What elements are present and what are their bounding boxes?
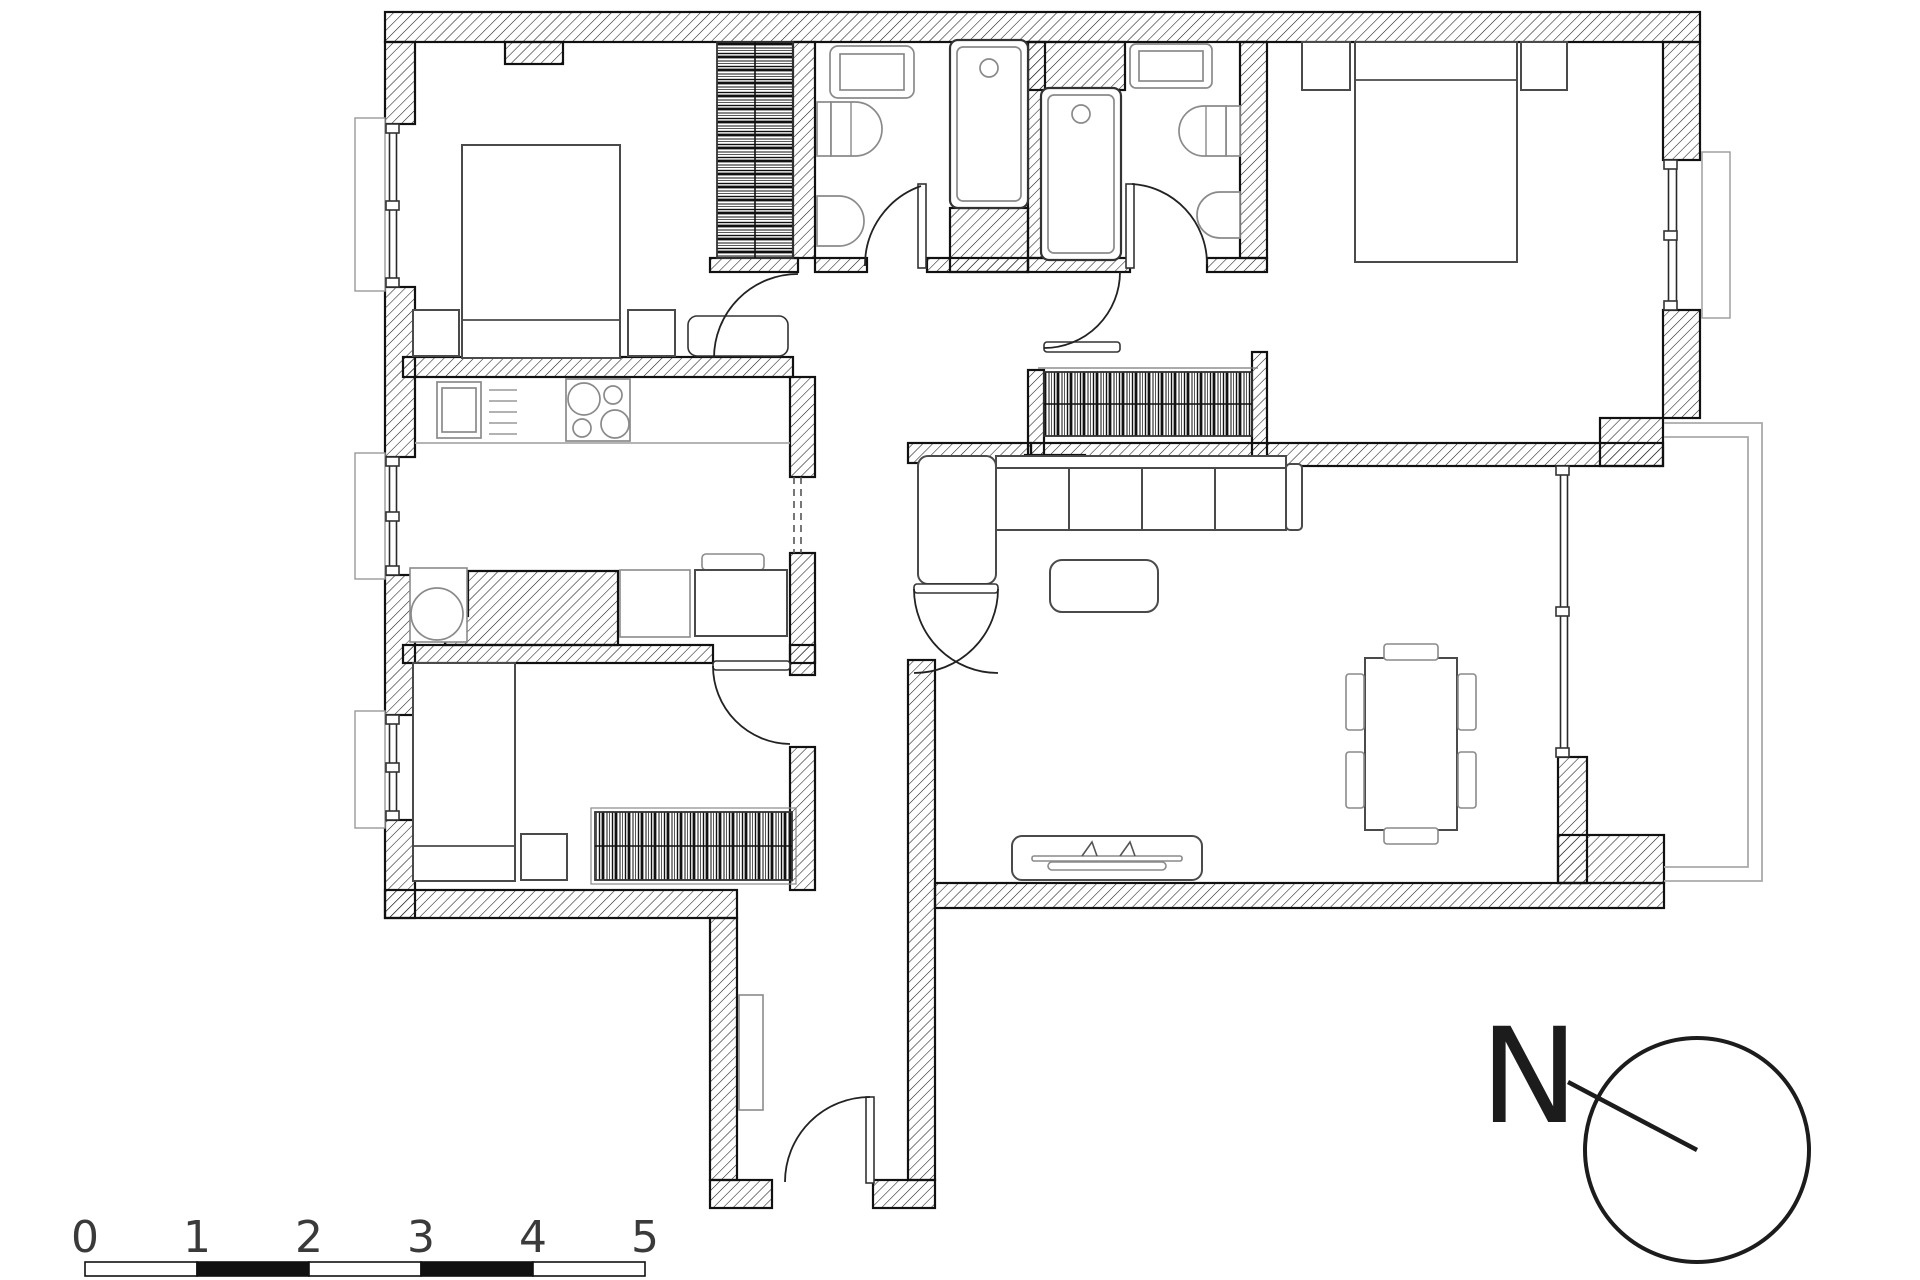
window-bedroom3 (355, 711, 399, 828)
coffee-table-icon (1050, 560, 1158, 612)
double-bed-icon (1355, 42, 1517, 262)
kitchen-sink-icon (437, 382, 517, 438)
nightstand-icon (1302, 42, 1350, 90)
wall-under-tub1 (950, 208, 1028, 272)
toilet-icon (1179, 106, 1240, 156)
wall-bedroom3-east (790, 747, 815, 890)
bathtub-icon (950, 40, 1028, 208)
scale-segment (197, 1262, 309, 1276)
bedroom-top-right-furniture (1302, 42, 1567, 262)
window-bedroom2 (1664, 152, 1730, 318)
scale-label-4: 4 (519, 1212, 547, 1263)
wall-kitchen-bedroom3 (403, 645, 713, 663)
double-bed-icon (462, 145, 620, 358)
tv-console-icon (1012, 836, 1202, 880)
nightstand-icon (413, 310, 459, 356)
washbasin-icon (830, 46, 914, 98)
washbasin-icon (1130, 44, 1212, 88)
door-swing-icon (865, 186, 921, 266)
scale-segment (533, 1262, 645, 1276)
chair-icon (1346, 674, 1364, 730)
wall-bottom-right-chunk (1558, 835, 1664, 883)
wall-bedroom2-west (1240, 42, 1267, 258)
door-swing-icon (1132, 184, 1207, 264)
dining-table-icon (1346, 644, 1476, 844)
door-swing-icon (713, 666, 790, 744)
door-bedroom-bottom-left (713, 661, 790, 744)
scale-label-2: 2 (295, 1212, 323, 1263)
bedroom-bottom-left-furniture (413, 663, 567, 881)
scale-label-1: 1 (183, 1212, 211, 1263)
radiator-icon (739, 995, 763, 1110)
wall-right-step (1600, 418, 1663, 466)
wall-bathroom1-south-l (815, 258, 867, 272)
nightstand-icon (521, 834, 567, 880)
floor-plan-sheet: 0 1 2 3 4 5 N (0, 0, 1920, 1280)
nightstand-icon (1521, 42, 1567, 90)
balcony (1664, 423, 1762, 881)
wall-corridor-right (908, 660, 935, 1180)
wall-bottom-left (385, 890, 737, 918)
chair-icon (1346, 752, 1364, 808)
wall-top (385, 12, 1700, 42)
north-arrow-icon: N (1480, 1000, 1809, 1262)
bathtub-icon (1041, 88, 1121, 260)
washing-machine-icon (410, 568, 467, 642)
wall-kitchen-east-lower (790, 553, 815, 663)
scale-segment (85, 1262, 197, 1276)
door-swing-icon (1044, 272, 1120, 348)
chair-icon (1458, 752, 1476, 808)
bidet-icon (1197, 192, 1240, 238)
desk-icon (620, 554, 787, 637)
cooktop-icon (566, 379, 630, 441)
sliding-door-kitchen (794, 477, 801, 553)
toilet-icon (817, 102, 882, 156)
wall-bathroom1-west (793, 42, 815, 258)
scale-bar-icon: 0 1 2 3 4 5 (71, 1212, 659, 1276)
scale-label-3: 3 (407, 1212, 435, 1263)
wall-corridor-bottom-right (873, 1180, 935, 1208)
nightstand-icon (628, 310, 675, 356)
scale-segment (421, 1262, 533, 1276)
bedroom-top-left-furniture (413, 145, 675, 358)
wall-corridor-bottom-left (710, 1180, 772, 1208)
scale-segment (309, 1262, 421, 1276)
wall-bedroom1-kitchen (403, 357, 793, 377)
door-bedroom-top-right (1044, 272, 1120, 352)
window-bedroom1 (355, 118, 399, 291)
door-entrance (785, 1097, 874, 1183)
chair-icon (1458, 674, 1476, 730)
wall-wardrobe1-south (710, 258, 798, 272)
scale-label-0: 0 (71, 1212, 99, 1263)
window-living-balcony (1556, 466, 1569, 757)
wall-corridor-left (710, 918, 737, 1180)
wall-bedroom1-notch (505, 42, 563, 64)
door-bathroom-1 (865, 184, 926, 268)
chair-icon (1384, 828, 1438, 844)
wall-bathroom2-top-chunk (1028, 42, 1125, 90)
window-kitchen (355, 453, 399, 579)
single-bed-icon (413, 663, 515, 881)
wall-kitchen-east-upper (790, 377, 815, 477)
entrance-corridor-items (739, 995, 763, 1110)
wall-right-upper (1663, 42, 1700, 160)
bidet-icon (817, 196, 864, 246)
door-swing-icon (785, 1097, 870, 1182)
wardrobe-bedroom3 (591, 808, 796, 884)
wall-kitchen-chunk (445, 571, 618, 645)
chair-icon (1384, 644, 1438, 660)
wall-bathroom2-south-r (1207, 258, 1267, 272)
door-bathroom-2 (1126, 184, 1207, 268)
wall-left-1 (385, 42, 415, 124)
living-room-furniture (918, 456, 1476, 880)
doors (688, 184, 1207, 1183)
wardrobe-hallway (1038, 368, 1258, 436)
door-bedroom-top-left (688, 274, 798, 358)
north-label: N (1480, 1000, 1579, 1154)
wall-right-mid (1663, 310, 1700, 418)
balcony-inner-rail (1664, 437, 1748, 867)
wall-living-bottom (935, 883, 1664, 908)
wardrobe-bedroom1 (717, 42, 793, 258)
scale-label-5: 5 (631, 1212, 659, 1263)
floor-plan-drawing: 0 1 2 3 4 5 N (0, 0, 1920, 1280)
